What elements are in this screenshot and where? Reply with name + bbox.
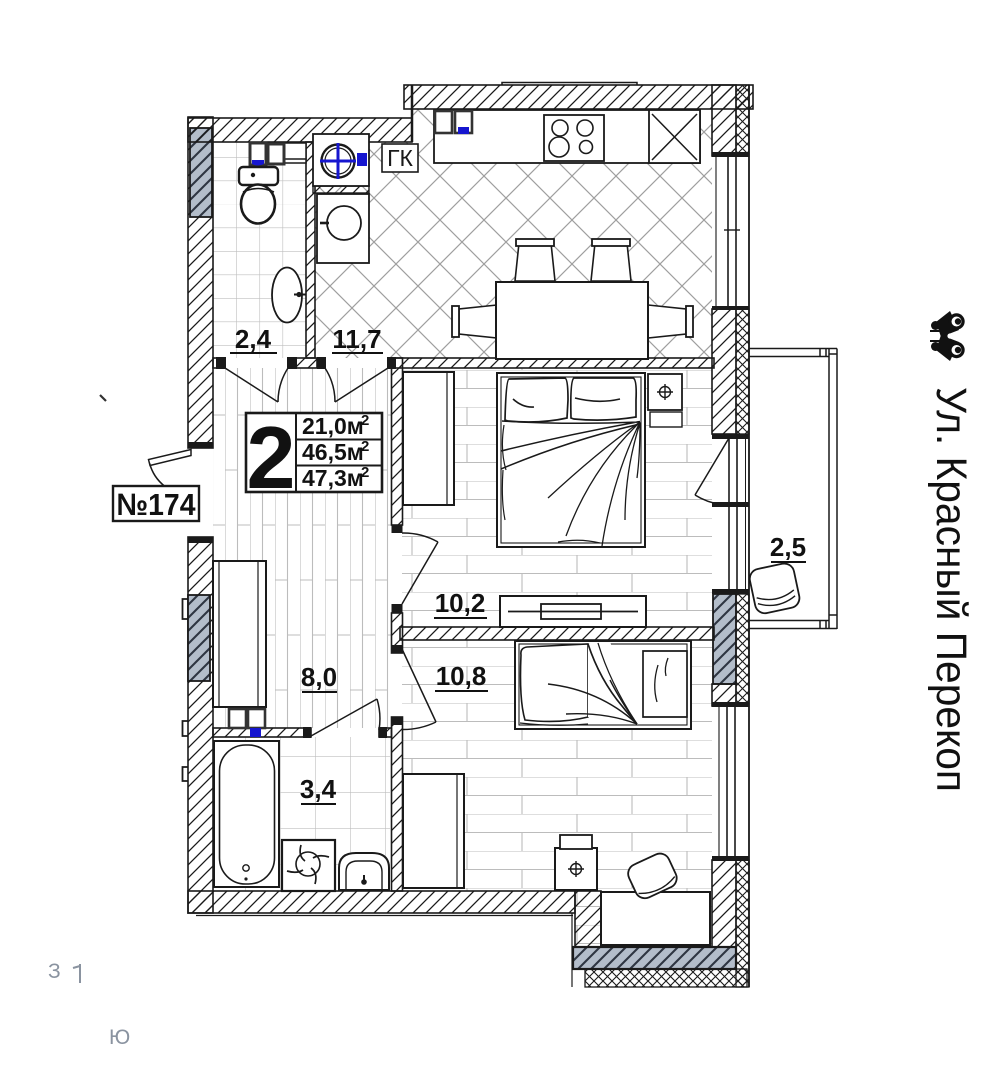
svg-text:2,4: 2,4 — [235, 324, 272, 354]
svg-text:11,7: 11,7 — [332, 324, 381, 354]
svg-text:Ул. Красный Перекоп: Ул. Красный Перекоп — [927, 387, 975, 792]
svg-text:Ю: Ю — [109, 1026, 130, 1049]
svg-text:10,8: 10,8 — [436, 661, 487, 691]
svg-text:2,5: 2,5 — [770, 532, 806, 562]
svg-text:46,5м: 46,5м — [302, 439, 364, 465]
svg-text:ГК: ГК — [387, 145, 413, 171]
svg-text:2: 2 — [361, 438, 369, 455]
svg-text:3,4: 3,4 — [300, 774, 337, 804]
svg-text:10,2: 10,2 — [435, 588, 486, 618]
svg-text:№174: №174 — [117, 487, 197, 522]
svg-text:З: З — [48, 960, 61, 983]
svg-text:2: 2 — [361, 412, 369, 429]
svg-text:21,0м: 21,0м — [302, 413, 364, 439]
svg-text:2: 2 — [361, 464, 369, 481]
svg-text:8,0: 8,0 — [301, 662, 337, 692]
svg-text:47,3м: 47,3м — [302, 465, 364, 491]
svg-text:2: 2 — [247, 408, 296, 507]
